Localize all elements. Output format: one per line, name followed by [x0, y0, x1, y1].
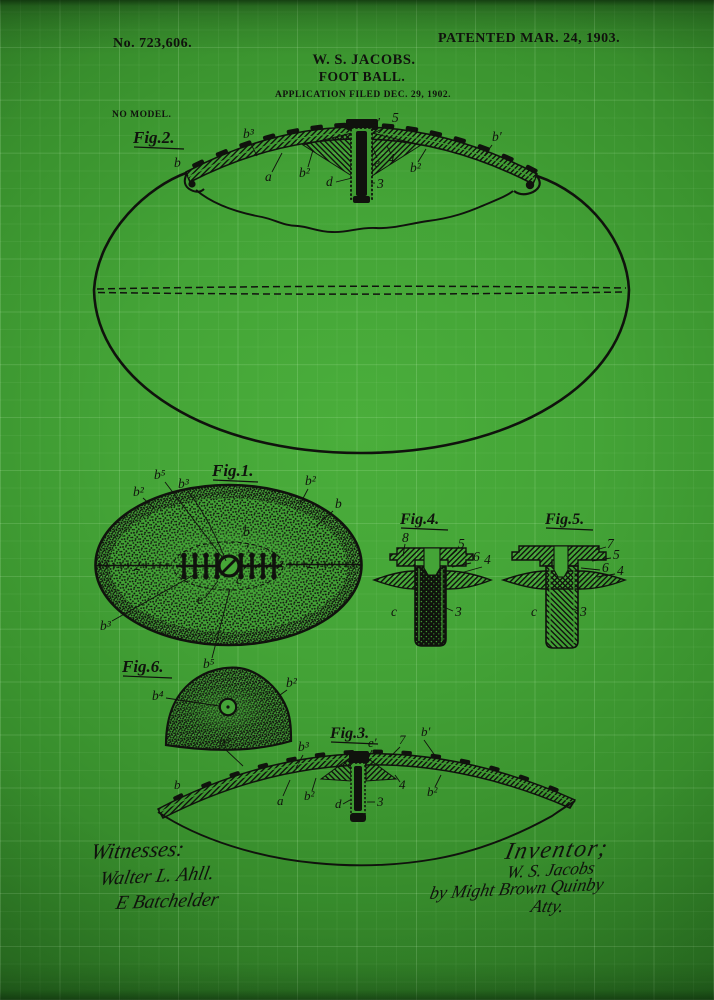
svg-text:4: 4: [484, 552, 491, 567]
svg-text:7: 7: [399, 732, 406, 747]
svg-text:b: b: [174, 155, 181, 170]
svg-text:3: 3: [454, 604, 462, 619]
svg-text:5: 5: [392, 110, 399, 125]
svg-text:b′: b′: [492, 129, 503, 144]
svg-text:by Might Brown Quinby: by Might Brown Quinby: [428, 874, 606, 903]
svg-text:2: 2: [307, 556, 314, 571]
svg-text:c: c: [531, 604, 537, 619]
svg-text:b⁵: b⁵: [154, 467, 166, 482]
svg-text:Fig.3.: Fig.3.: [329, 725, 369, 742]
svg-text:Fig.2.: Fig.2.: [132, 128, 175, 147]
svg-text:c: c: [391, 604, 397, 619]
svg-text:6: 6: [473, 549, 480, 564]
svg-text:APPLICATION FILED DEC. 29, 190: APPLICATION FILED DEC. 29, 1902.: [275, 90, 451, 100]
svg-text:b²: b²: [305, 473, 317, 488]
svg-text:b²: b²: [133, 484, 145, 499]
svg-text:W. S. JACOBS.: W. S. JACOBS.: [312, 52, 415, 68]
svg-text:3: 3: [579, 604, 587, 619]
svg-text:b³: b³: [243, 126, 255, 141]
svg-text:3: 3: [376, 794, 384, 809]
svg-text:Fig.6.: Fig.6.: [121, 657, 164, 676]
svg-text:4: 4: [399, 777, 406, 792]
svg-text:b²: b²: [286, 675, 298, 690]
svg-text:e′: e′: [371, 115, 381, 130]
svg-text:PATENTED MAR. 24, 1903.: PATENTED MAR. 24, 1903.: [438, 31, 620, 46]
svg-text:E Batchelder: E Batchelder: [113, 889, 221, 914]
svg-text:d: d: [326, 174, 333, 189]
svg-text:e: e: [197, 592, 203, 607]
svg-text:b²: b²: [427, 784, 439, 799]
svg-text:a: a: [265, 169, 272, 184]
svg-text:Witnesses:: Witnesses:: [89, 836, 186, 864]
svg-text:3: 3: [376, 176, 384, 191]
svg-text:b³: b³: [178, 476, 190, 491]
svg-text:FOOT BALL.: FOOT BALL.: [319, 69, 406, 84]
svg-text:b³: b³: [298, 739, 310, 754]
svg-text:e′: e′: [368, 735, 377, 750]
svg-text:d: d: [335, 796, 342, 811]
svg-text:Walter L. Ahll.: Walter L. Ahll.: [98, 862, 216, 890]
svg-text:b²: b²: [299, 165, 311, 180]
svg-text:NO MODEL.: NO MODEL.: [112, 110, 171, 120]
svg-text:b: b: [243, 524, 250, 539]
svg-text:Fig.5.: Fig.5.: [544, 511, 584, 528]
svg-text:Atty.: Atty.: [528, 896, 566, 916]
svg-text:No. 723,606.: No. 723,606.: [113, 36, 192, 51]
svg-text:Fig.4.: Fig.4.: [399, 511, 439, 528]
svg-text:c: c: [236, 572, 242, 587]
svg-text:2: 2: [134, 558, 141, 573]
svg-text:b³: b³: [219, 734, 231, 749]
svg-text:b: b: [335, 496, 342, 511]
svg-text:6: 6: [602, 560, 609, 575]
svg-text:5: 5: [613, 547, 620, 562]
svg-text:4: 4: [388, 151, 395, 166]
svg-text:Fig.1.: Fig.1.: [211, 461, 254, 480]
svg-text:8: 8: [402, 530, 409, 545]
svg-text:b²: b²: [304, 788, 316, 803]
svg-text:b³: b³: [100, 618, 112, 633]
svg-text:5: 5: [458, 536, 465, 551]
svg-text:b′: b′: [421, 724, 431, 739]
svg-text:4: 4: [617, 563, 624, 578]
svg-text:b⁴: b⁴: [152, 688, 164, 703]
svg-text:b⁵: b⁵: [203, 656, 215, 671]
svg-text:b: b: [174, 777, 181, 792]
svg-text:b²: b²: [410, 160, 422, 175]
